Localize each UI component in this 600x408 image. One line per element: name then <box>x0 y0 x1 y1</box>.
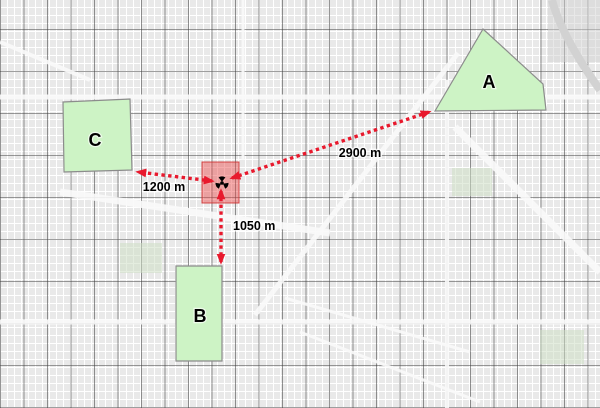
decor-road <box>0 42 90 80</box>
zone-c-label: C <box>89 130 102 150</box>
decor-park <box>540 330 584 364</box>
decor-road <box>285 298 470 352</box>
decor-road <box>255 53 458 315</box>
distance-label-a: 2900 m <box>339 146 381 160</box>
decor-park <box>452 168 492 196</box>
distance-label-c: 1200 m <box>143 180 185 194</box>
measure-line-a[interactable] <box>232 112 429 178</box>
incident-layer <box>202 162 239 203</box>
zone-a-label: A <box>483 72 496 92</box>
decor-road <box>300 332 480 402</box>
zone-b-label: B <box>194 306 207 326</box>
zone-a-polygon[interactable] <box>435 29 546 111</box>
decor-road <box>455 127 600 272</box>
decor-road <box>60 192 330 233</box>
map-overlay: A B C 2900 m 1200 m 1050 m <box>0 0 600 408</box>
distance-label-b: 1050 m <box>233 219 275 233</box>
decor-park <box>120 243 162 273</box>
measurements-layer: 2900 m 1200 m 1050 m <box>138 112 429 262</box>
map-viewport: A B C 2900 m 1200 m 1050 m <box>0 0 600 408</box>
